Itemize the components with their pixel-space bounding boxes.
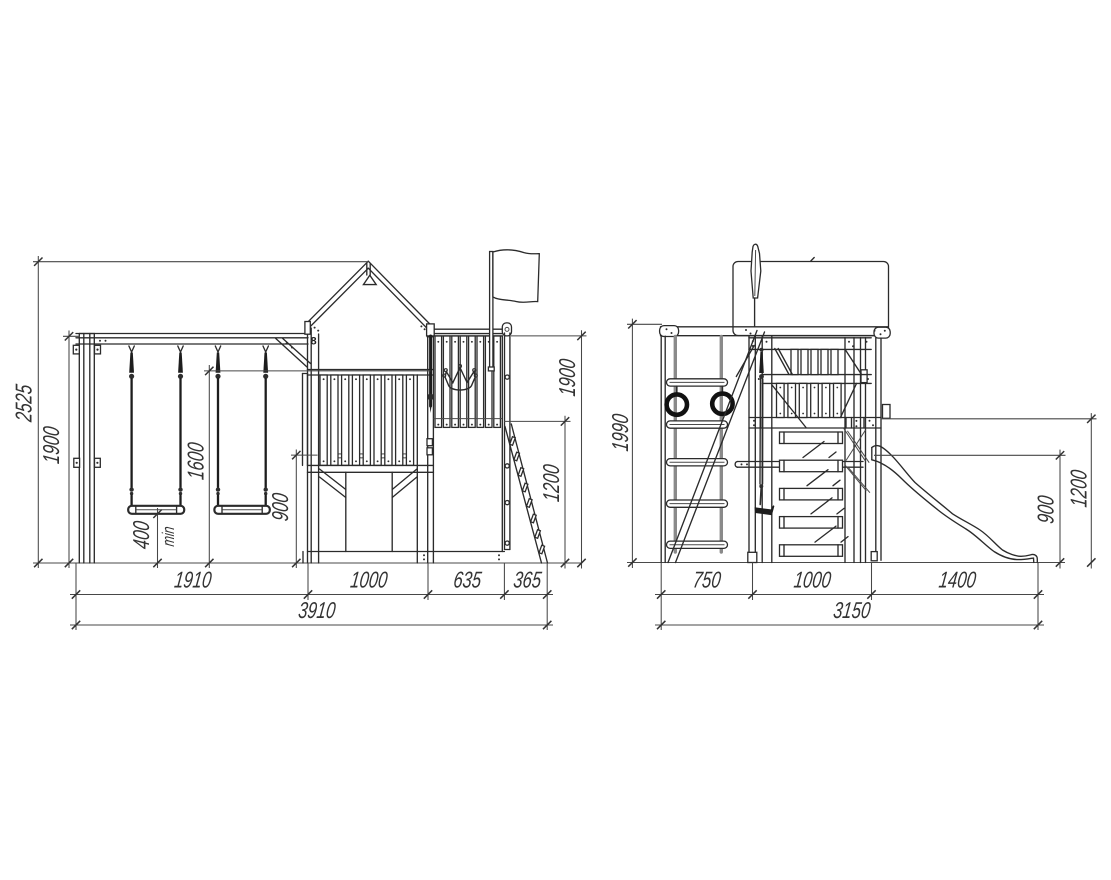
svg-text:1910: 1910	[173, 568, 214, 593]
svg-text:900: 900	[269, 491, 294, 522]
svg-text:2525: 2525	[12, 382, 37, 423]
svg-text:635: 635	[452, 568, 483, 593]
svg-text:750: 750	[691, 568, 722, 593]
svg-text:8: 8	[311, 336, 317, 348]
svg-text:min: min	[160, 525, 178, 547]
svg-text:1200: 1200	[540, 462, 565, 503]
svg-text:1990: 1990	[609, 412, 634, 453]
svg-text:1200: 1200	[1067, 468, 1092, 509]
svg-text:1000: 1000	[792, 568, 833, 593]
svg-text:1900: 1900	[556, 357, 581, 398]
svg-text:1000: 1000	[349, 568, 390, 593]
svg-text:365: 365	[512, 568, 543, 593]
svg-text:400: 400	[130, 519, 155, 550]
svg-text:1400: 1400	[937, 568, 978, 593]
svg-text:1600: 1600	[184, 440, 209, 481]
svg-text:3910: 3910	[297, 599, 338, 624]
svg-text:900: 900	[1034, 494, 1059, 525]
svg-text:1900: 1900	[40, 424, 65, 465]
svg-text:3150: 3150	[832, 599, 873, 624]
